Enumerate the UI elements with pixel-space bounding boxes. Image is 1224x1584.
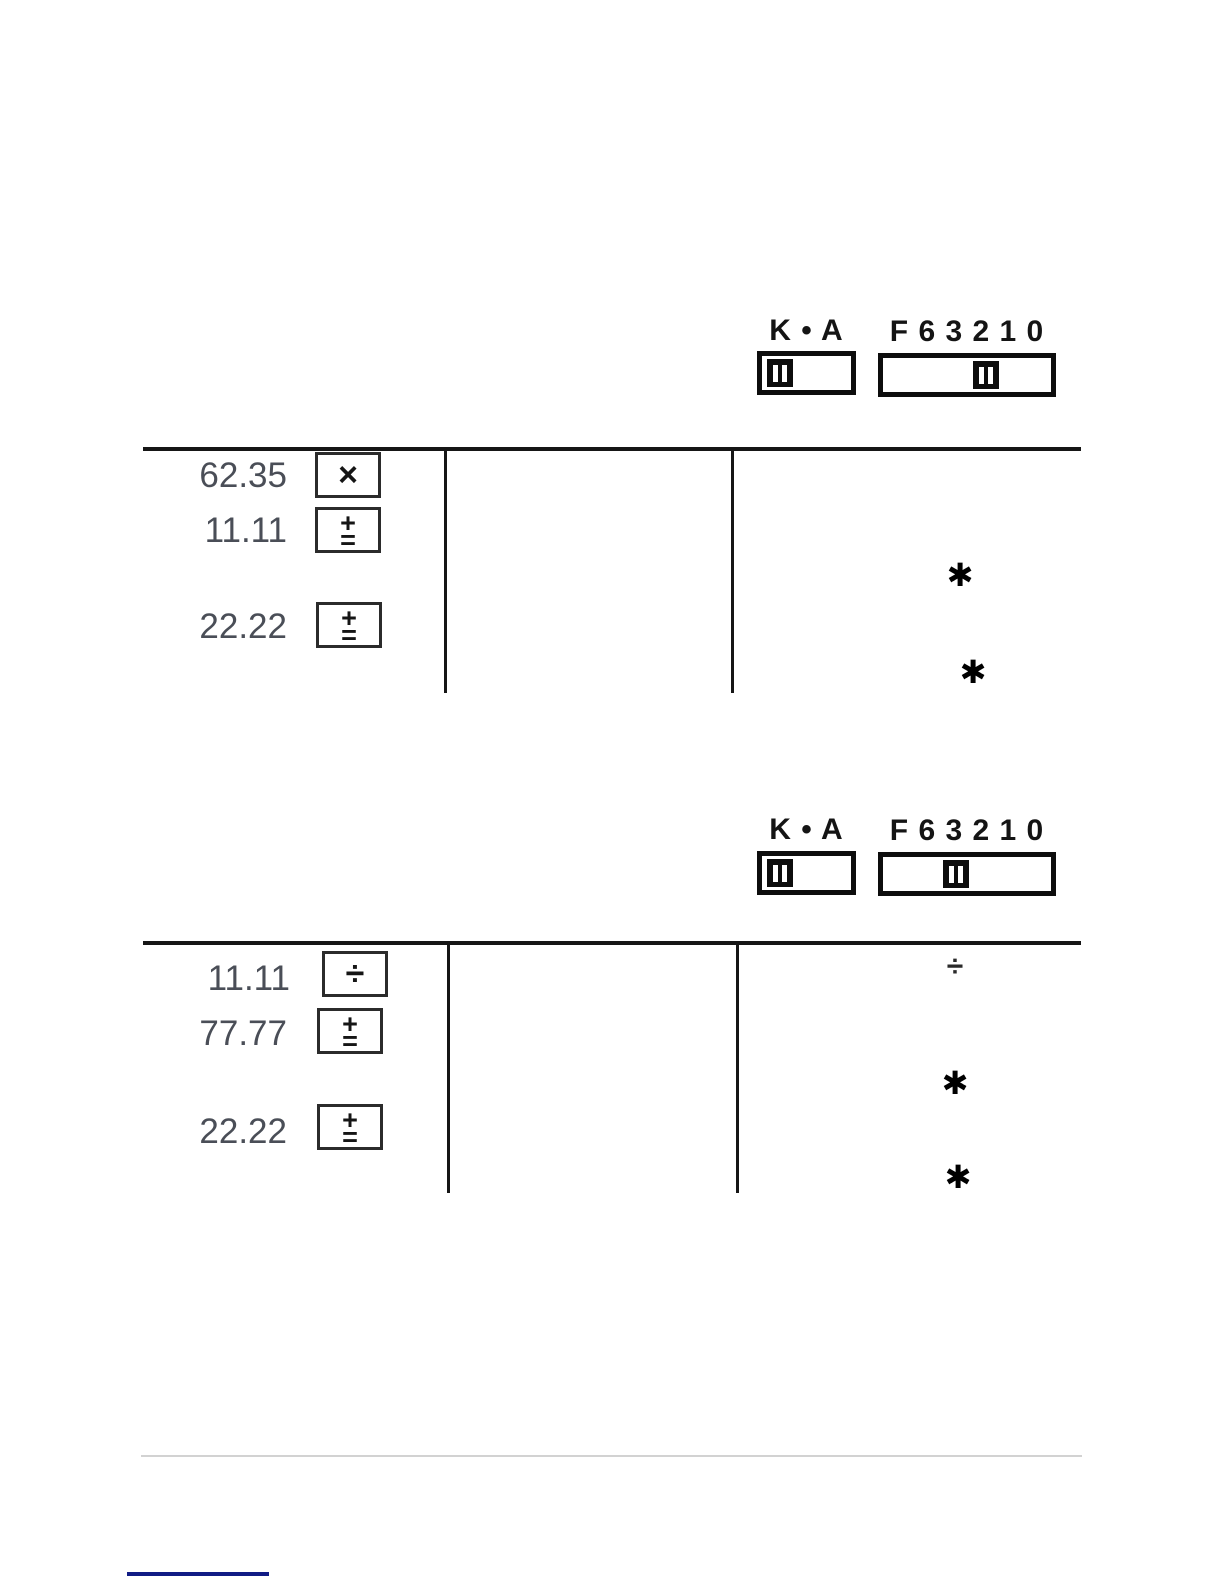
table-top-rule xyxy=(143,941,1081,945)
slider-slit xyxy=(782,365,787,382)
plus-equal-key: + = xyxy=(317,1104,383,1150)
key-glyph: ÷ xyxy=(346,957,365,991)
table-top-rule xyxy=(143,447,1081,451)
slider-slit xyxy=(773,365,778,382)
footer-link-underline[interactable] xyxy=(127,1572,269,1576)
decimal-selector-label: F 6 3 2 1 0 xyxy=(878,317,1056,347)
switch-slider-knob xyxy=(943,860,969,888)
decimal-selector-switch xyxy=(878,852,1056,896)
table-column-divider xyxy=(731,447,734,693)
plus-equal-key: + = xyxy=(315,507,381,553)
table-column-divider xyxy=(736,941,739,1193)
slider-slit xyxy=(773,865,778,882)
manual-page: K • A F 6 3 2 1 0 62.35 × 11.11 + = 22.2… xyxy=(0,0,1224,1584)
slider-slit xyxy=(958,866,963,883)
key-glyph: = xyxy=(342,1129,358,1146)
slider-slit xyxy=(782,865,787,882)
entry-value: 62.35 xyxy=(157,458,287,493)
entry-value: 22.22 xyxy=(157,1114,287,1149)
entry-value: 11.11 xyxy=(160,961,290,996)
slider-slit xyxy=(988,367,993,384)
multiply-key: × xyxy=(315,452,381,498)
total-asterisk: ✱ xyxy=(937,1067,973,1099)
ka-switch xyxy=(757,851,856,895)
plus-equal-key: + = xyxy=(316,602,382,648)
divide-key: ÷ xyxy=(322,951,388,997)
entry-value: 22.22 xyxy=(157,609,287,644)
divide-symbol: ÷ xyxy=(937,952,973,982)
footer-divider xyxy=(141,1455,1082,1457)
total-asterisk: ✱ xyxy=(942,559,978,591)
entry-value: 11.11 xyxy=(157,513,287,548)
key-glyph: = xyxy=(342,1033,358,1050)
switch-slider-knob xyxy=(973,361,999,389)
decimal-selector-switch xyxy=(878,353,1056,397)
slider-slit xyxy=(949,866,954,883)
key-glyph: = xyxy=(341,627,357,644)
ka-switch-label: K • A xyxy=(757,316,856,346)
entry-value: 77.77 xyxy=(157,1016,287,1051)
table-column-divider xyxy=(444,447,447,693)
plus-equal-key: + = xyxy=(317,1008,383,1054)
key-glyph: = xyxy=(340,532,356,549)
slider-slit xyxy=(979,367,984,384)
total-asterisk: ✱ xyxy=(940,1161,976,1193)
total-asterisk: ✱ xyxy=(955,656,991,688)
switch-slider-knob xyxy=(767,359,793,387)
switch-slider-knob xyxy=(767,859,793,887)
ka-switch-label: K • A xyxy=(757,815,856,845)
decimal-selector-label: F 6 3 2 1 0 xyxy=(878,816,1056,846)
ka-switch xyxy=(757,351,856,395)
key-glyph: × xyxy=(338,458,358,492)
table-column-divider xyxy=(447,941,450,1193)
